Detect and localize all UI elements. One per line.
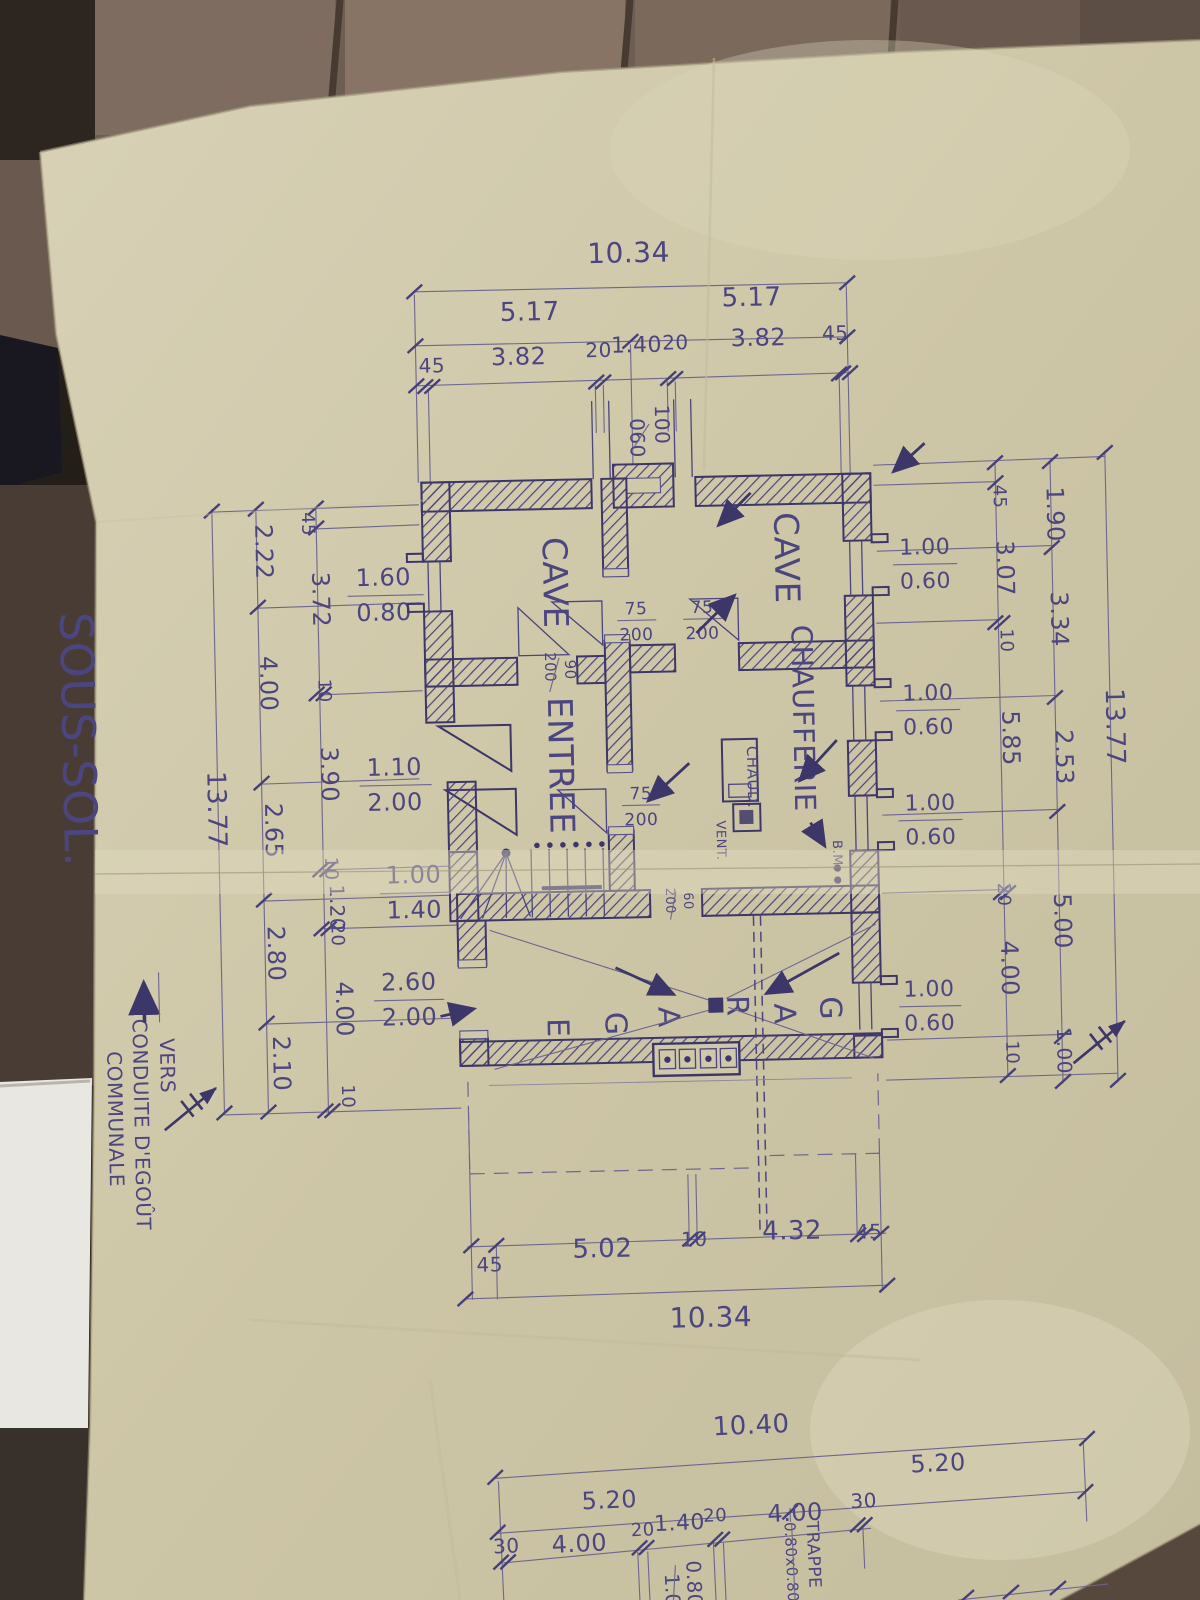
window-right-w: 1.00 [899, 535, 950, 561]
dim-top-seg: 20 [585, 338, 612, 363]
sewer-note-line3: COMMUNALE [102, 1051, 129, 1187]
dim-right-mid: 1.00 [1052, 1027, 1077, 1074]
dim-bottom-seg: 45 [476, 1252, 503, 1277]
dim-lower-seg: 20 [703, 1505, 728, 1527]
dim-top-seg: 3.82 [730, 323, 786, 352]
boiler-label: CHAUD. [743, 746, 762, 809]
dim-right-inner: 10 [1001, 1040, 1022, 1064]
sewer-note-line1: VERS [155, 1038, 180, 1093]
dim-lower-total: 10.40 [712, 1409, 790, 1442]
dark-object [0, 335, 62, 490]
window-right-h: 0.60 [903, 715, 954, 741]
door-entrance-w: 1.10 [366, 753, 422, 782]
dim-left-inner: 3.90 [315, 746, 344, 802]
dim-top-seg: 45 [822, 321, 849, 346]
door-garage-side-h: 2.00 [381, 1003, 437, 1032]
dim-bottom-seg: 5.02 [572, 1233, 633, 1264]
sewer-note-line2: CONDUITE D'EGOÛT [127, 1018, 155, 1230]
dim-right-inner: 45 [988, 484, 1009, 508]
glass-block-window [653, 1042, 740, 1076]
dim-top-seg: 1.40 [611, 333, 662, 359]
dim-left-total: 13.77 [200, 771, 232, 849]
door-75-w: 75 [690, 598, 713, 618]
door-90-w: 90 [561, 659, 579, 679]
room-label-cave-left: CAVE [533, 537, 575, 629]
dim-left-inner: 45 [297, 512, 318, 536]
dim-top-total: 10.34 [587, 235, 670, 270]
axis-window-width: 100 [650, 404, 675, 444]
dim-right-mid: 2.53 [1050, 729, 1079, 785]
dim-right-total: 13.77 [1099, 688, 1131, 766]
dim-right-mid: 1.90 [1041, 486, 1070, 542]
window-stair-h: 1.40 [386, 895, 442, 924]
floor-shadow-bottom-left [0, 1428, 92, 1600]
dim-bottom-seg: 4.32 [762, 1215, 823, 1246]
dim-right-mid: 5.00 [1048, 893, 1077, 949]
garage-letter: A [766, 1003, 801, 1025]
dim-lower-seg: 4.00 [551, 1528, 608, 1558]
dim-left-inner: 20 [327, 922, 348, 946]
dim-right-inner: 3.07 [991, 540, 1020, 596]
dim-lower-seg: 20 [630, 1519, 655, 1541]
dim-top-seg: 20 [662, 330, 689, 355]
dim-lower-half: 5.20 [581, 1485, 638, 1515]
door-75-h: 200 [624, 810, 658, 831]
window-cave-left-h: 0.80 [356, 598, 412, 627]
dim-top-half-left: 5.17 [500, 297, 561, 328]
axis-window-height: 060 [625, 418, 650, 458]
door-garage-side-w: 2.60 [381, 968, 437, 997]
door-entrance-h: 2.00 [367, 788, 423, 817]
garage-letter: G [812, 996, 847, 1020]
dim-left-mid: 2.22 [249, 524, 278, 580]
door-60-w: 60 [680, 892, 695, 910]
dim-left-inner: 10 [313, 679, 334, 703]
dim-top-seg: 3.82 [491, 342, 547, 371]
dim-lower-seg: 30 [850, 1488, 878, 1513]
dim-top-half-right: 5.17 [721, 282, 782, 313]
dim-bottom-total: 10.34 [669, 1300, 752, 1335]
garage-letter: R [719, 995, 754, 1017]
window-right-w: 1.00 [904, 791, 955, 817]
photo-of-floor-plan: SOUS-SOL. 10.34 5.17 5.17 45 3.82 20 1.4… [0, 0, 1200, 1600]
dim-lower-seg: 30 [493, 1533, 521, 1558]
door-75-h: 200 [619, 625, 653, 646]
dim-left-inner: 10 [337, 1084, 358, 1108]
trappe-size: 0.80x0.80 [781, 1522, 803, 1600]
dim-lower-half: 5.20 [910, 1448, 967, 1478]
window-right-w: 1.00 [903, 977, 954, 1003]
dim-left-inner: 3.72 [306, 572, 335, 628]
trappe-label: TRAPPE [801, 1520, 824, 1589]
dim-lower-seg: 1.40 [653, 1510, 705, 1537]
room-label-chaufferie: CHAUFFERIE [784, 624, 822, 812]
window-right-w: 1.00 [902, 681, 953, 707]
dim-lower-shaft-h: 0.80 [681, 1560, 707, 1600]
white-paper-sheet [0, 1078, 92, 1432]
blueprint-photo: SOUS-SOL. 10.34 5.17 5.17 45 3.82 20 1.4… [0, 0, 1200, 1600]
window-cave-left-w: 1.60 [355, 563, 411, 592]
room-label-cave-right: CAVE [765, 512, 807, 604]
dim-bottom-seg: 45 [856, 1219, 883, 1244]
dim-left-mid: 2.80 [262, 926, 291, 982]
window-right-h: 0.60 [905, 825, 956, 851]
dim-left-mid: 2.10 [267, 1035, 296, 1091]
dim-right-inner: 5.85 [996, 710, 1025, 766]
dim-bottom-seg: 10 [681, 1227, 708, 1252]
dim-right-inner: 4.00 [995, 940, 1024, 996]
dim-left-inner: 4.00 [330, 981, 359, 1037]
window-right-h: 0.60 [900, 569, 951, 595]
room-label-entree: ENTREE [539, 696, 582, 834]
dim-top-seg: 45 [418, 353, 445, 378]
door-75-w: 75 [624, 599, 647, 619]
garage-letter: E [540, 1018, 575, 1038]
dim-left-mid: 4.00 [254, 656, 283, 712]
dim-right-inner: 10 [995, 628, 1016, 652]
dim-right-mid: 3.34 [1045, 591, 1074, 647]
sheet-title: SOUS-SOL. [49, 611, 108, 867]
window-right-h: 0.60 [904, 1011, 955, 1037]
